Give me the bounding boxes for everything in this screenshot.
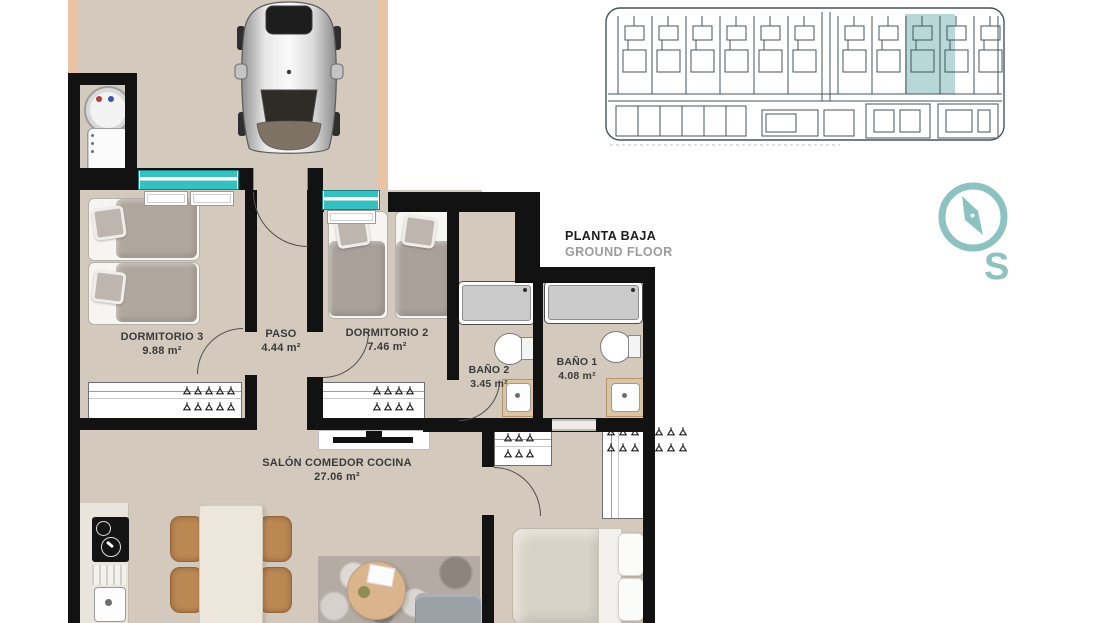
bathroom2-nook-floor xyxy=(458,212,515,282)
tv-bracket xyxy=(366,431,382,441)
door-jamb xyxy=(307,168,308,190)
room-label-salon: SALÓN COMEDOR COCINA 27.06 m² xyxy=(262,456,411,484)
room-name: DORMITORIO 2 xyxy=(346,326,429,340)
window-sill-unit xyxy=(190,191,234,206)
window xyxy=(138,170,239,190)
bed-pillow xyxy=(618,533,644,576)
cold-valve xyxy=(108,96,114,102)
wall-segment xyxy=(245,190,257,332)
washer-knob xyxy=(91,150,94,153)
compass-south-label: S xyxy=(984,246,1009,289)
kitchen-faucet xyxy=(105,599,112,606)
bed-duvet xyxy=(116,199,197,258)
wall-segment xyxy=(388,192,540,212)
hot-valve xyxy=(96,96,102,102)
room-area: 3.45 m² xyxy=(469,377,510,391)
wall-segment xyxy=(447,207,459,380)
sliding-door xyxy=(552,419,596,431)
window xyxy=(322,190,380,210)
wall-segment xyxy=(643,283,655,623)
room-area: 4.44 m² xyxy=(261,341,300,355)
plan-subtitle: GROUND FLOOR xyxy=(565,245,673,259)
room-name: SALÓN COMEDOR COCINA xyxy=(262,456,411,470)
wall-segment xyxy=(482,515,494,623)
hanger-icon xyxy=(182,384,238,417)
car-top-view-icon xyxy=(233,0,345,158)
bed-duvet xyxy=(396,241,452,316)
dining-chair xyxy=(258,516,292,562)
plant xyxy=(358,586,370,598)
wall-segment xyxy=(533,283,543,425)
dining-table xyxy=(199,505,263,623)
bed-duvet xyxy=(329,241,385,316)
sink-drain xyxy=(622,393,627,398)
door-jamb xyxy=(253,168,254,190)
room-area: 4.08 m² xyxy=(557,369,598,383)
shower-tray xyxy=(544,281,643,324)
washer-knob xyxy=(91,142,94,145)
wall-segment xyxy=(540,267,655,283)
room-name: PASO xyxy=(261,327,300,341)
hanger-icon xyxy=(606,425,638,513)
plot-edge-right xyxy=(377,0,388,215)
room-area: 7.46 m² xyxy=(346,340,429,354)
door-opening xyxy=(307,332,323,377)
wall-segment xyxy=(68,73,80,623)
entry-opening xyxy=(254,168,307,190)
room-name: DORMITORIO 3 xyxy=(121,330,204,344)
washer-knob xyxy=(91,134,94,137)
bed xyxy=(512,528,602,623)
wall-segment xyxy=(423,418,655,432)
room-area: 27.06 m² xyxy=(262,470,411,484)
bed-pillow xyxy=(618,578,644,621)
window-sill-unit xyxy=(144,191,188,206)
shower-tray xyxy=(458,281,535,325)
bed-pillow xyxy=(401,214,438,249)
room-label-bano1: BAÑO 1 4.08 m² xyxy=(557,355,598,383)
room-label-paso: PASO 4.44 m² xyxy=(261,327,300,355)
sink-drainer xyxy=(92,565,126,585)
site-plan-mini-map xyxy=(600,4,1012,150)
room-label-dormitorio2: DORMITORIO 2 7.46 m² xyxy=(346,326,429,354)
wall-segment xyxy=(515,212,540,283)
sink-drain xyxy=(515,393,520,398)
door-opening xyxy=(482,467,494,515)
bed-duvet xyxy=(116,263,197,322)
hanger-icon xyxy=(503,431,543,464)
window-sill-unit xyxy=(327,210,376,224)
wall-segment xyxy=(68,418,253,430)
door-opening xyxy=(447,380,459,418)
bed-pillow xyxy=(91,269,127,305)
dining-chair xyxy=(258,567,292,613)
burner xyxy=(96,521,111,536)
room-label-dormitorio3: DORMITORIO 3 9.88 m² xyxy=(121,330,204,358)
room-name: BAÑO 1 xyxy=(557,355,598,369)
room-area: 9.88 m² xyxy=(121,344,204,358)
room-name: BAÑO 2 xyxy=(469,363,510,377)
toilet-cistern xyxy=(628,335,641,358)
room-label-bano2: BAÑO 2 3.45 m² xyxy=(469,363,510,391)
wall-segment xyxy=(482,425,494,467)
door-opening xyxy=(245,332,257,375)
floorplan-page: DORMITORIO 3 9.88 m² PASO 4.44 m² DORMIT… xyxy=(0,0,1110,623)
plot-edge-left xyxy=(68,0,78,75)
hanger-icon xyxy=(372,384,418,417)
bed-pillow xyxy=(91,205,127,241)
plan-title: PLANTA BAJA xyxy=(565,230,656,243)
sofa xyxy=(415,593,481,623)
